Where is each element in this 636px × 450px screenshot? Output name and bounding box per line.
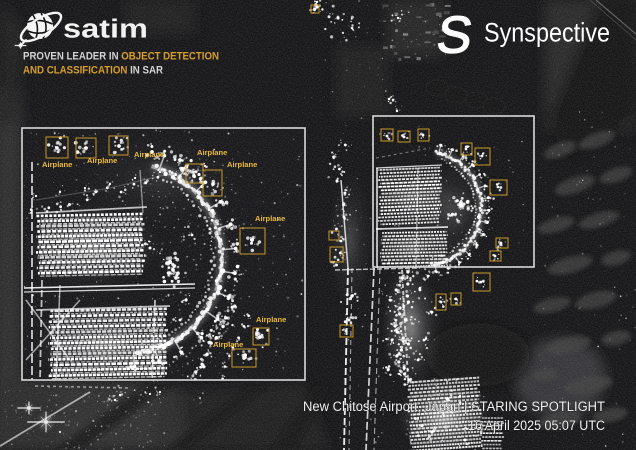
svg-text:Airplane: Airplane [256, 315, 286, 324]
svg-text:Airplane: Airplane [42, 160, 72, 169]
svg-text:16 April 2025 05:07 UTC: 16 April 2025 05:07 UTC [468, 418, 605, 433]
svg-text:Airplane: Airplane [255, 214, 285, 223]
svg-text:New Chitose Airport, Japan | S: New Chitose Airport, Japan | STARING SPO… [303, 399, 605, 414]
svg-text:Airplane: Airplane [227, 160, 257, 169]
svg-text:Airplane: Airplane [87, 156, 117, 165]
svg-text:PROVEN LEADER IN OBJECT DETECT: PROVEN LEADER IN OBJECT DETECTION [23, 51, 219, 63]
svg-text:Synspective: Synspective [484, 18, 610, 48]
svg-text:AND CLASSIFICATION IN SAR: AND CLASSIFICATION IN SAR [23, 65, 163, 77]
svg-text:Airplane: Airplane [213, 340, 243, 349]
svg-text:satim: satim [63, 16, 148, 44]
svg-text:Airplane: Airplane [134, 150, 164, 159]
svg-text:Airplane: Airplane [197, 148, 227, 157]
